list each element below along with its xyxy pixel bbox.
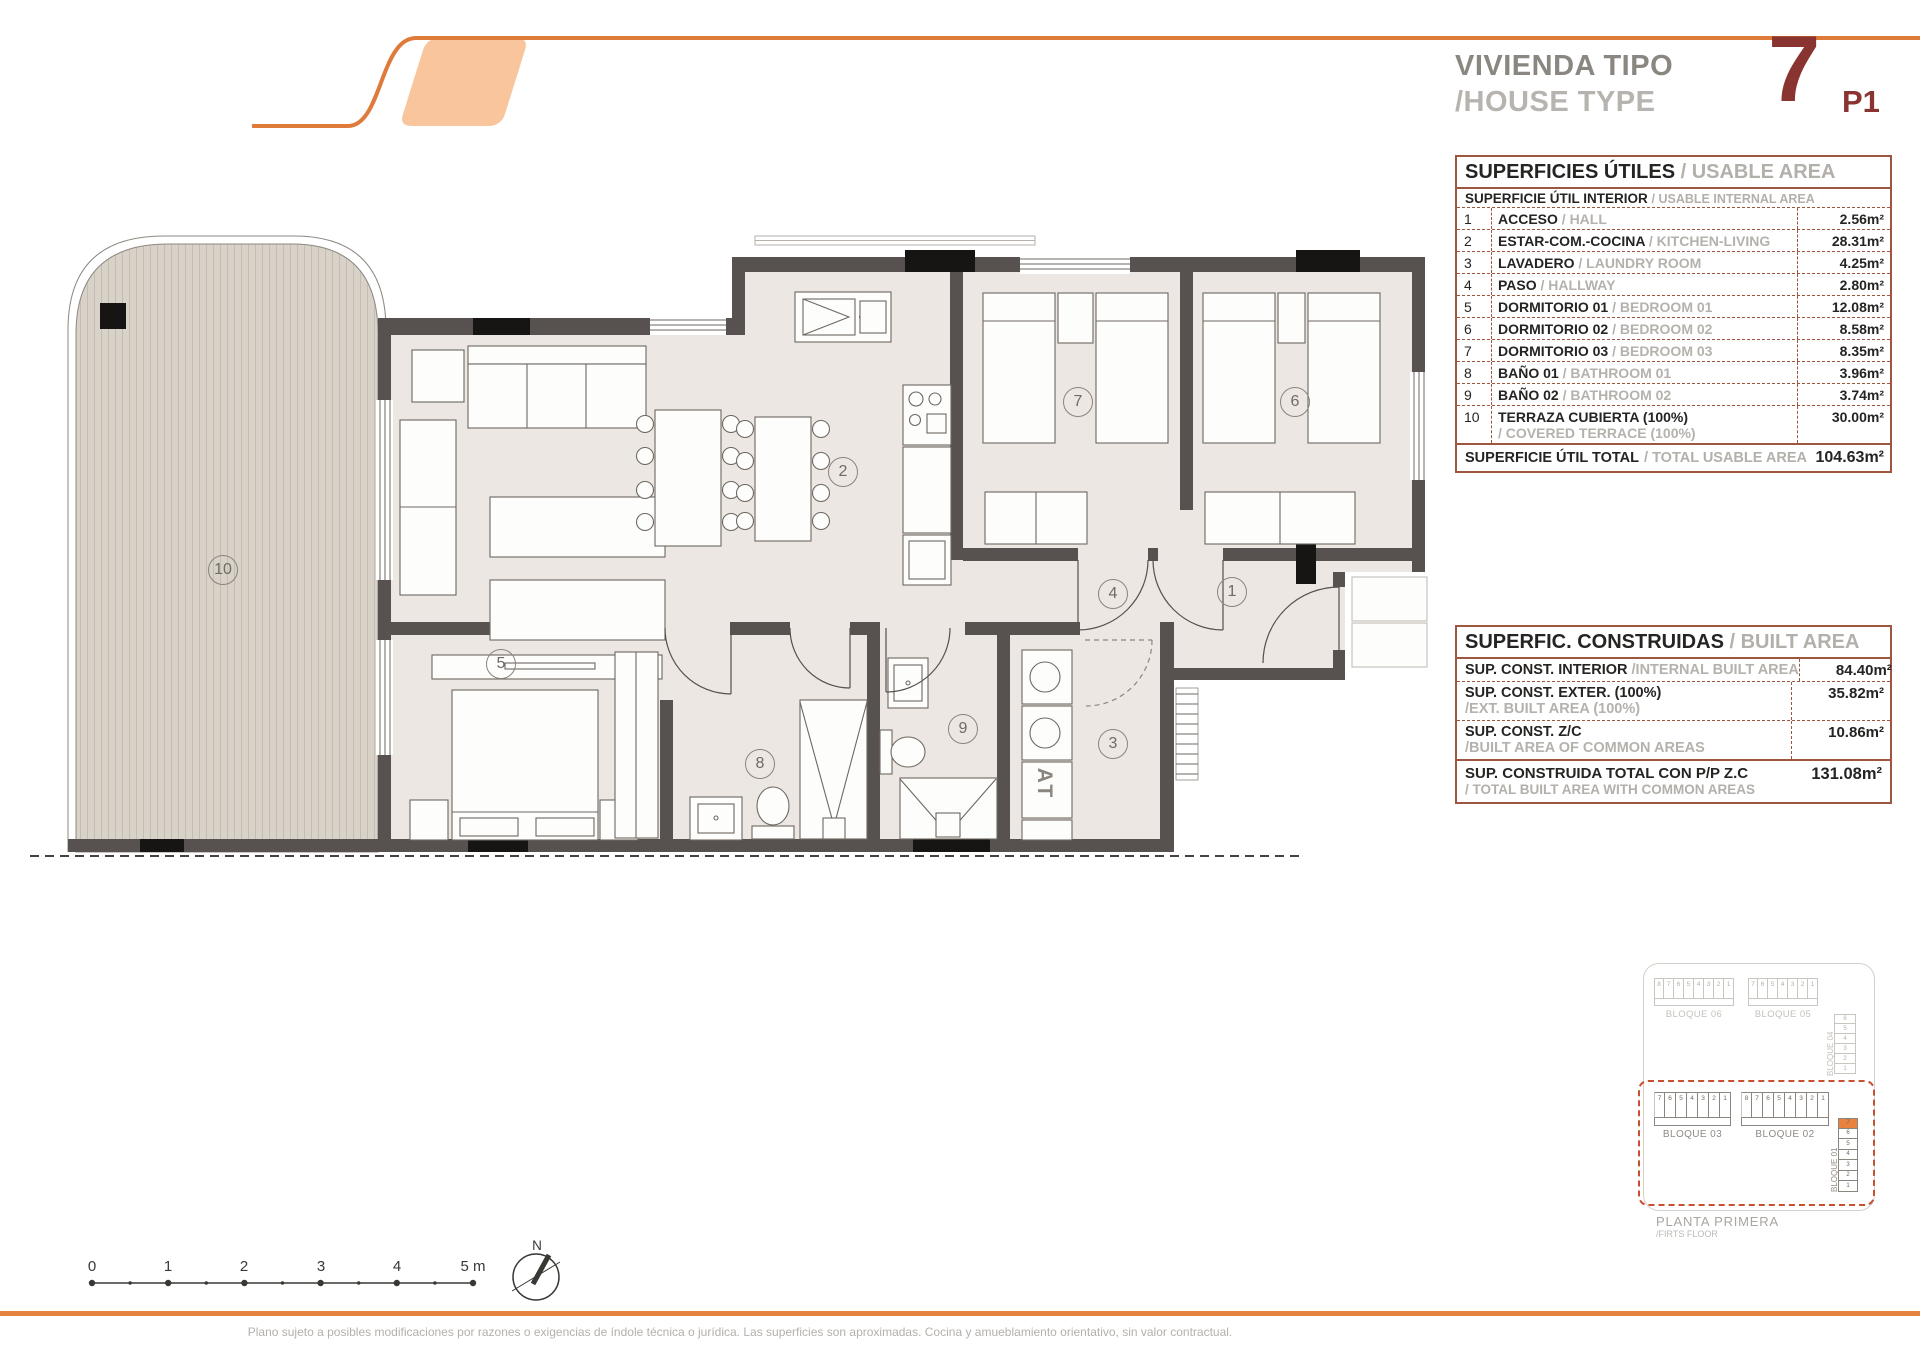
unit-cell: 7: [1748, 978, 1758, 999]
unit-cell: 5: [1838, 1139, 1858, 1150]
built-rows: SUP. CONST. INTERIOR /INTERNAL BUILT ARE…: [1457, 659, 1890, 759]
room-name: DORMITORIO 01 / BEDROOM 01: [1491, 296, 1797, 317]
built-table-title: SUPERFIC. CONSTRUIDAS / BUILT AREA: [1457, 627, 1890, 659]
row-number: 10: [1457, 406, 1491, 443]
room-area: 30.00m²: [1797, 406, 1890, 443]
usable-row: 5DORMITORIO 01 / BEDROOM 0112.08m²: [1457, 295, 1890, 317]
unit-cell: 2: [1834, 1054, 1856, 1064]
room-area: 3.96m²: [1797, 362, 1890, 383]
built-total-row: SUP. CONSTRUIDA TOTAL CON P/P Z.C / TOTA…: [1457, 759, 1890, 802]
unit-cell: 5: [1834, 1024, 1856, 1034]
plan-sheet: VIVIENDA TIPO /HOUSE TYPE 7 P1 SUPERFICI…: [0, 0, 1920, 1362]
usable-total-value: 104.63m²: [1816, 449, 1885, 467]
terrace: [68, 236, 386, 852]
unit-cell: 5: [1676, 1092, 1687, 1118]
scale-label: 2: [240, 1258, 248, 1275]
unit-cell: 6: [1838, 1129, 1858, 1140]
row-number: 7: [1457, 340, 1491, 361]
bloque-03: 7654321 BLOQUE 03: [1654, 1092, 1731, 1140]
room-area: 28.31m²: [1797, 230, 1890, 251]
unit-cell: 3: [1796, 1092, 1807, 1118]
scale-bar: [89, 1280, 476, 1286]
unit-cell: 6: [1665, 1092, 1676, 1118]
bloque-05: 7654321 BLOQUE 05: [1748, 978, 1818, 1020]
built-name: SUP. CONST. EXTER. (100%) /EXT. BUILT AR…: [1457, 682, 1791, 720]
built-name: SUP. CONST. INTERIOR /INTERNAL BUILT ARE…: [1457, 659, 1799, 681]
usable-row: 2ESTAR-COM.-COCINA / KITCHEN-LIVING28.31…: [1457, 229, 1890, 251]
unit-cell: 2: [1798, 978, 1808, 999]
built-row: SUP. CONST. Z/C /BUILT AREA OF COMMON AR…: [1457, 720, 1890, 759]
unit-cell: 1: [1834, 1064, 1856, 1074]
room-label-9: 9: [948, 714, 978, 744]
unit-cell: 7: [1752, 1092, 1763, 1118]
built-row: SUP. CONST. EXTER. (100%) /EXT. BUILT AR…: [1457, 681, 1890, 720]
disclaimer-text: Plano sujeto a posibles modificaciones p…: [60, 1325, 1420, 1339]
usable-row: 10TERRAZA CUBIERTA (100%) / COVERED TERR…: [1457, 405, 1890, 443]
bloque-04: 654321: [1834, 1014, 1856, 1074]
built-area-value: 35.82m²: [1791, 682, 1890, 720]
house-type-floor: P1: [1842, 84, 1880, 120]
usable-table-subtitle: SUPERFICIE ÚTIL INTERIOR / USABLE INTERN…: [1457, 189, 1890, 207]
row-number: 2: [1457, 230, 1491, 251]
unit-cell: 4: [1687, 1092, 1698, 1118]
room-label-8: 8: [745, 749, 775, 779]
unit-cell: 6: [1763, 1092, 1774, 1118]
key-plan: 87654321 BLOQUE 06 7654321 BLOQUE 05 654…: [1643, 963, 1875, 1211]
usable-row: 6DORMITORIO 02 / BEDROOM 028.58m²: [1457, 317, 1890, 339]
room-name: DORMITORIO 02 / BEDROOM 02: [1491, 318, 1797, 339]
row-number: 4: [1457, 274, 1491, 295]
column: [100, 303, 126, 329]
bloque-06: 87654321 BLOQUE 06: [1654, 978, 1734, 1020]
room-label-7: 7: [1063, 387, 1093, 417]
unit-cell: 5: [1774, 1092, 1785, 1118]
unit-cell: 1: [1720, 1092, 1731, 1118]
stairs: [1176, 688, 1198, 780]
bloque-01: 7654321: [1838, 1118, 1858, 1192]
bloque-01-label: BLOQUE 01: [1830, 1148, 1839, 1192]
room-name: TERRAZA CUBIERTA (100%) / COVERED TERRAC…: [1491, 406, 1797, 443]
footer-accent-bar: [0, 1311, 1920, 1316]
room-name: ESTAR-COM.-COCINA / KITCHEN-LIVING: [1491, 230, 1797, 251]
room-area: 2.80m²: [1797, 274, 1890, 295]
unit-cell: 3: [1834, 1044, 1856, 1054]
built-total-value: 131.08m²: [1811, 765, 1882, 797]
unit-cell: 4: [1785, 1092, 1796, 1118]
compass-icon: [512, 1254, 560, 1300]
scale-label: 0: [88, 1258, 96, 1275]
unit-cell: 1: [1838, 1181, 1858, 1192]
usable-row: 7DORMITORIO 03 / BEDROOM 038.35m²: [1457, 339, 1890, 361]
room-label-4: 4: [1098, 579, 1128, 609]
usable-row: 4PASO / HALLWAY2.80m²: [1457, 273, 1890, 295]
title-es: VIVIENDA TIPO: [1455, 48, 1673, 84]
unit-cell: 2: [1709, 1092, 1720, 1118]
unit-cell: 4: [1694, 978, 1704, 999]
bloque-02: 87654321 BLOQUE 02: [1741, 1092, 1829, 1140]
unit-cell: 6: [1758, 978, 1768, 999]
unit-cell: 4: [1838, 1150, 1858, 1161]
built-name: SUP. CONST. Z/C /BUILT AREA OF COMMON AR…: [1457, 721, 1791, 759]
unit-cell: 6: [1834, 1014, 1856, 1024]
house-type-number: 7: [1768, 22, 1820, 116]
unit-cell: 2: [1807, 1092, 1818, 1118]
room-name: LAVADERO / LAUNDRY ROOM: [1491, 252, 1797, 273]
unit-cell: 5: [1768, 978, 1778, 999]
room-name: DORMITORIO 03 / BEDROOM 03: [1491, 340, 1797, 361]
room-area: 8.58m²: [1797, 318, 1890, 339]
unit-cell: 3: [1788, 978, 1798, 999]
usable-row: 9BAÑO 02 / BATHROOM 023.74m²: [1457, 383, 1890, 405]
unit-cell: 7: [1664, 978, 1674, 999]
row-number: 8: [1457, 362, 1491, 383]
usable-total-row: SUPERFICIE ÚTIL TOTAL/ TOTAL USABLE AREA…: [1457, 443, 1890, 471]
unit-cell: 2: [1838, 1171, 1858, 1182]
room-area: 8.35m²: [1797, 340, 1890, 361]
unit-cell: 5: [1684, 978, 1694, 999]
room-name: PASO / HALLWAY: [1491, 274, 1797, 295]
unit-cell: 7: [1654, 1092, 1665, 1118]
unit-cell: 4: [1834, 1034, 1856, 1044]
unit-cell: 1: [1724, 978, 1734, 999]
unit-cell: 2: [1714, 978, 1724, 999]
row-number: 9: [1457, 384, 1491, 405]
scale-label: 3: [317, 1258, 325, 1275]
room-name: BAÑO 02 / BATHROOM 02: [1491, 384, 1797, 405]
scale-label: 5 m: [460, 1258, 485, 1275]
room-label-1: 1: [1217, 577, 1247, 607]
room-label-3: 3: [1098, 729, 1128, 759]
built-row: SUP. CONST. INTERIOR /INTERNAL BUILT ARE…: [1457, 659, 1890, 681]
key-plan-caption: PLANTA PRIMERA /FIRTS FLOOR: [1656, 1214, 1779, 1239]
room-name: BAÑO 01 / BATHROOM 01: [1491, 362, 1797, 383]
unit-cell-highlighted: 7: [1838, 1118, 1858, 1129]
room-area: 2.56m²: [1797, 208, 1890, 229]
bloque-04-label: BLOQUE 04: [1826, 1032, 1835, 1076]
usable-table-title: SUPERFICIES ÚTILES / USABLE AREA: [1457, 157, 1890, 189]
unit-cell: 3: [1698, 1092, 1709, 1118]
unit-cell: 3: [1704, 978, 1714, 999]
unit-cell: 8: [1654, 978, 1664, 999]
scale-label: 1: [164, 1258, 172, 1275]
unit-cell: 1: [1818, 1092, 1829, 1118]
room-label-6: 6: [1280, 387, 1310, 417]
scale-label: 4: [393, 1258, 401, 1275]
at-label: AT: [1032, 768, 1056, 800]
room-area: 12.08m²: [1797, 296, 1890, 317]
built-area-value: 10.86m²: [1791, 721, 1890, 759]
room-label-10: 10: [208, 555, 238, 585]
usable-row: 8BAÑO 01 / BATHROOM 013.96m²: [1457, 361, 1890, 383]
room-area: 4.25m²: [1797, 252, 1890, 273]
title-en: /HOUSE TYPE: [1455, 84, 1673, 120]
row-number: 1: [1457, 208, 1491, 229]
row-number: 5: [1457, 296, 1491, 317]
built-area-value: 84.40m²: [1799, 659, 1898, 681]
room-name: ACCESO / HALL: [1491, 208, 1797, 229]
unit-cell: 6: [1674, 978, 1684, 999]
compass-north-label: N: [532, 1238, 542, 1253]
room-label-5: 5: [486, 649, 516, 679]
room-label-2: 2: [828, 457, 858, 487]
unit-cell: 8: [1741, 1092, 1752, 1118]
room-area: 3.74m²: [1797, 384, 1890, 405]
page-title: VIVIENDA TIPO /HOUSE TYPE: [1455, 48, 1673, 120]
unit-cell: 1: [1808, 978, 1818, 999]
usable-rows: 1ACCESO / HALL2.56m²2ESTAR-COM.-COCINA /…: [1457, 207, 1890, 443]
row-number: 6: [1457, 318, 1491, 339]
unit-cell: 3: [1838, 1160, 1858, 1171]
row-number: 3: [1457, 252, 1491, 273]
usable-area-table: SUPERFICIES ÚTILES / USABLE AREA SUPERFI…: [1455, 155, 1892, 473]
usable-row: 3LAVADERO / LAUNDRY ROOM4.25m²: [1457, 251, 1890, 273]
built-area-table: SUPERFIC. CONSTRUIDAS / BUILT AREA SUP. …: [1455, 625, 1892, 804]
unit-cell: 4: [1778, 978, 1788, 999]
usable-row: 1ACCESO / HALL2.56m²: [1457, 207, 1890, 229]
